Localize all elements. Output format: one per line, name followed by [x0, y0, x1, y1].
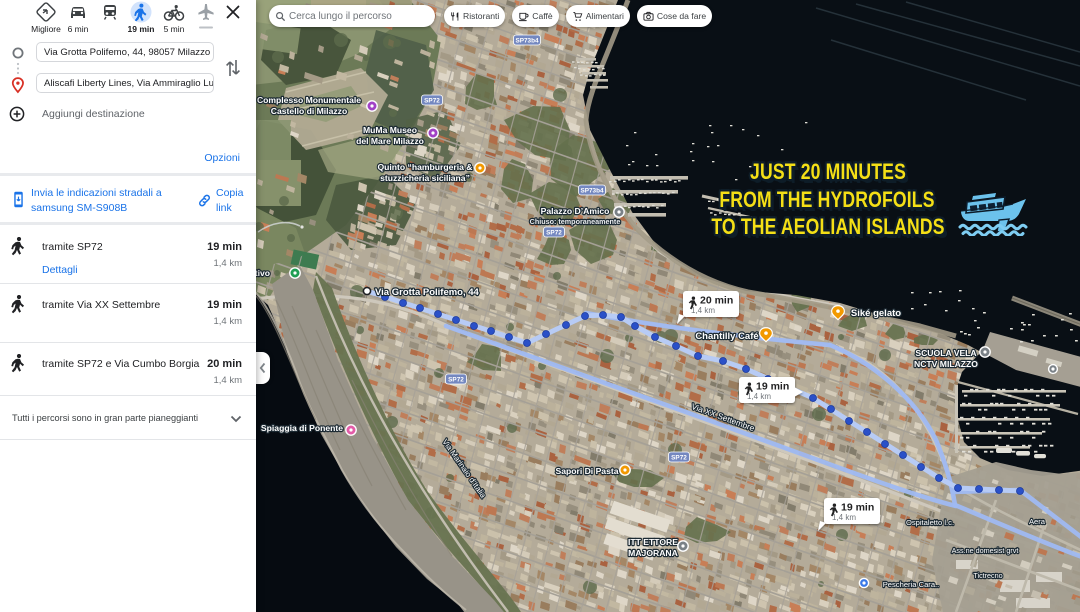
svg-text:SP72: SP72 — [424, 98, 440, 105]
svg-text:Chiuso: temporaneamente: Chiuso: temporaneamente — [530, 217, 621, 226]
svg-text:Pescheria Cara..: Pescheria Cara.. — [883, 580, 940, 589]
svg-text:SP72: SP72 — [546, 230, 562, 237]
svg-text:Complesso Monumentale: Complesso Monumentale — [257, 95, 361, 105]
svg-text:SP73b4: SP73b4 — [515, 38, 539, 45]
svg-text:Via Grotta Polifemo, 44: Via Grotta Polifemo, 44 — [375, 287, 480, 298]
svg-text:Ass.ne domesist grvt: Ass.ne domesist grvt — [952, 546, 1019, 555]
svg-text:SP73b4: SP73b4 — [580, 188, 604, 195]
svg-text:Siké gelato: Siké gelato — [851, 308, 901, 319]
svg-text:Sportivo: Sportivo — [256, 268, 270, 278]
svg-text:20 min: 20 min — [700, 295, 733, 307]
svg-text:NCTV MILAZZO: NCTV MILAZZO — [914, 359, 978, 369]
svg-text:stuzzicheria siciliana”: stuzzicheria siciliana” — [380, 173, 470, 183]
svg-text:MAJORANA: MAJORANA — [628, 548, 678, 558]
svg-text:Castello di Milazzo: Castello di Milazzo — [271, 106, 347, 116]
svg-text:SP72: SP72 — [671, 455, 687, 462]
svg-text:del Mare Milazzo: del Mare Milazzo — [356, 136, 424, 146]
svg-text:1,4 km: 1,4 km — [747, 392, 771, 401]
svg-text:19 min: 19 min — [756, 381, 789, 393]
svg-text:Spiaggia di Ponente: Spiaggia di Ponente — [261, 423, 343, 433]
svg-text:Chantilly Café: Chantilly Café — [695, 331, 758, 342]
svg-text:19 min: 19 min — [841, 502, 874, 514]
svg-text:Palazzo D’Amico: Palazzo D’Amico — [541, 206, 610, 216]
svg-text:Ospitaletto l.c.: Ospitaletto l.c. — [906, 518, 954, 527]
svg-text:1,4 km: 1,4 km — [832, 513, 856, 522]
svg-text:1,4 km: 1,4 km — [691, 306, 715, 315]
svg-text:Quinto “hamburgeria &: Quinto “hamburgeria & — [377, 162, 472, 172]
svg-text:ITT ETTORE: ITT ETTORE — [628, 537, 678, 547]
svg-text:Aera: Aera — [1029, 517, 1046, 526]
svg-text:Sapori Di Pasta: Sapori Di Pasta — [555, 466, 618, 476]
svg-text:MuMa Museo: MuMa Museo — [363, 125, 417, 135]
svg-text:Tictrecno: Tictrecno — [973, 571, 1002, 580]
svg-text:SP72: SP72 — [448, 377, 464, 384]
svg-text:SCUOLA VELA: SCUOLA VELA — [915, 348, 976, 358]
